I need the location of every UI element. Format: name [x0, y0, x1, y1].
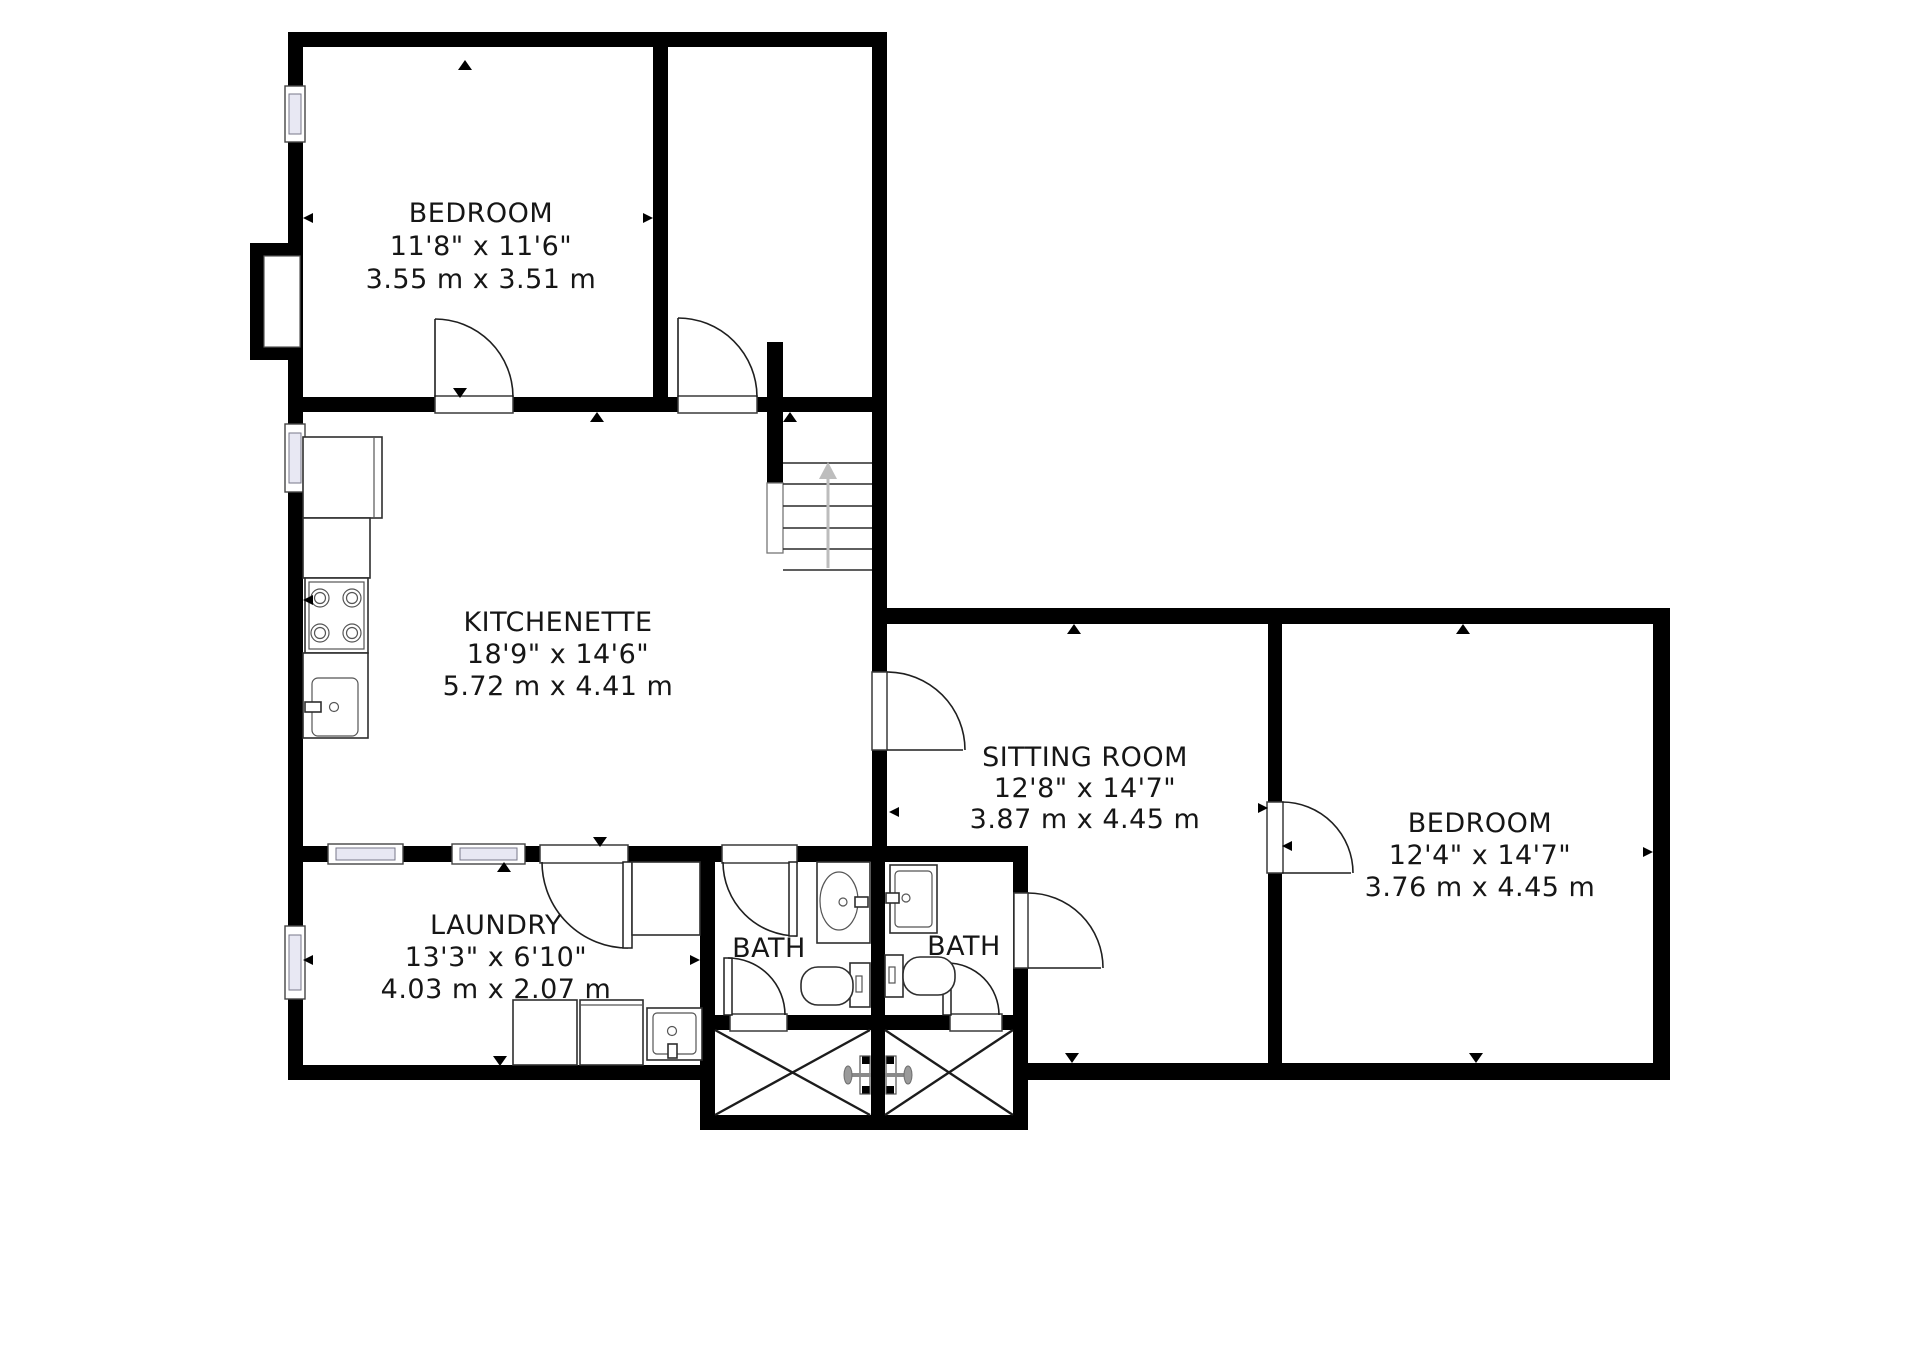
stove	[305, 578, 368, 653]
wall-right-east	[1653, 608, 1670, 1080]
stair-railing	[767, 483, 783, 553]
room-size-imperial: 18'9" x 14'6"	[467, 639, 649, 670]
window-kitchenette-west	[285, 424, 305, 492]
chimney-alcove-niche	[264, 256, 300, 347]
room-name: SITTING ROOM	[982, 742, 1188, 773]
marker-left	[889, 807, 899, 817]
label-laundry: LAUNDRY 13'3" x 6'10" 4.03 m x 2.07 m	[381, 910, 612, 1005]
marker-up	[783, 412, 797, 422]
laundry-sink	[647, 1008, 702, 1060]
wall-bath-east	[1013, 846, 1028, 1130]
wall-laundry-south	[288, 1065, 715, 1080]
shower-1	[715, 1030, 871, 1115]
wall-shower-south	[700, 1115, 1028, 1130]
washer-1	[513, 1000, 577, 1065]
stair-direction-arrow	[819, 462, 837, 568]
door-sitting-room	[872, 672, 965, 750]
label-bath-1: BATH	[732, 933, 806, 964]
refrigerator	[303, 437, 382, 518]
marker-right	[690, 955, 700, 965]
room-size-imperial: 12'8" x 14'7"	[994, 773, 1176, 804]
door-bath1	[722, 845, 797, 936]
room-size-metric: 4.03 m x 2.07 m	[381, 974, 612, 1005]
wall-west	[288, 32, 303, 1080]
water-heater	[632, 862, 700, 935]
washer-2	[580, 1000, 643, 1065]
window-bedroom1-west	[285, 86, 305, 142]
marker-up	[458, 60, 472, 70]
marker-left	[303, 213, 313, 223]
door-bedroom1	[435, 319, 513, 413]
bath2-vanity-sink	[886, 865, 937, 933]
door-bedroom2	[1267, 802, 1353, 873]
wall-laundry-east	[700, 846, 715, 1130]
room-size-imperial: 11'8" x 11'6"	[390, 231, 572, 262]
room-size-metric: 3.55 m x 3.51 m	[366, 264, 597, 295]
wall-right-south	[1028, 1063, 1670, 1080]
shower-2	[885, 1030, 1013, 1115]
door-hall	[678, 318, 757, 413]
wall-bedroom1-south	[303, 397, 872, 412]
door-shower1	[724, 958, 787, 1031]
shower2-valve	[885, 1056, 912, 1094]
room-name: BEDROOM	[409, 198, 553, 229]
label-bath-2: BATH	[927, 931, 1001, 962]
wall-top	[288, 32, 887, 47]
window-divider-1	[328, 844, 403, 864]
kitchen-counter	[303, 518, 370, 578]
marker-up	[1067, 624, 1081, 634]
kitchen-fixtures	[303, 437, 382, 738]
wall-bath-divider	[871, 852, 885, 1130]
room-name: KITCHENETTE	[463, 607, 652, 638]
marker-down	[1469, 1053, 1483, 1063]
room-name: LAUNDRY	[430, 910, 562, 941]
door-bath2	[1014, 893, 1103, 968]
window-divider-2	[452, 844, 525, 864]
room-labels: BEDROOM 11'8" x 11'6" 3.55 m x 3.51 m KI…	[366, 198, 1596, 1005]
room-size-metric: 5.72 m x 4.41 m	[443, 671, 674, 702]
label-bedroom-1: BEDROOM 11'8" x 11'6" 3.55 m x 3.51 m	[366, 198, 597, 295]
marker-right	[1643, 847, 1653, 857]
room-size-imperial: 12'4" x 14'7"	[1389, 840, 1571, 871]
label-sitting-room: SITTING ROOM 12'8" x 14'7" 3.87 m x 4.45…	[970, 742, 1201, 835]
bath1-toilet	[801, 963, 870, 1007]
room-name: BEDROOM	[1408, 808, 1552, 839]
label-kitchenette: KITCHENETTE 18'9" x 14'6" 5.72 m x 4.41 …	[443, 607, 674, 702]
bath1-vanity-sink	[817, 862, 870, 943]
floor-plan: BEDROOM 11'8" x 11'6" 3.55 m x 3.51 m KI…	[0, 0, 1920, 1358]
bath1-fixtures	[801, 862, 870, 1007]
room-size-imperial: 13'3" x 6'10"	[405, 942, 587, 973]
marker-down	[1065, 1053, 1079, 1063]
marker-up	[1456, 624, 1470, 634]
marker-right	[643, 213, 653, 223]
marker-up	[590, 412, 604, 422]
window-laundry-west	[285, 926, 305, 999]
room-size-metric: 3.76 m x 4.45 m	[1365, 872, 1596, 903]
marker-down	[493, 1056, 507, 1066]
wall-bedroom1-divider	[653, 47, 668, 412]
shower1-valve	[844, 1056, 871, 1094]
wall-right-top	[872, 608, 1670, 624]
label-bedroom-2: BEDROOM 12'4" x 14'7" 3.76 m x 4.45 m	[1365, 808, 1596, 903]
wall-stair-stub	[767, 342, 783, 483]
room-size-metric: 3.87 m x 4.45 m	[970, 804, 1201, 835]
kitchen-sink	[303, 653, 368, 738]
